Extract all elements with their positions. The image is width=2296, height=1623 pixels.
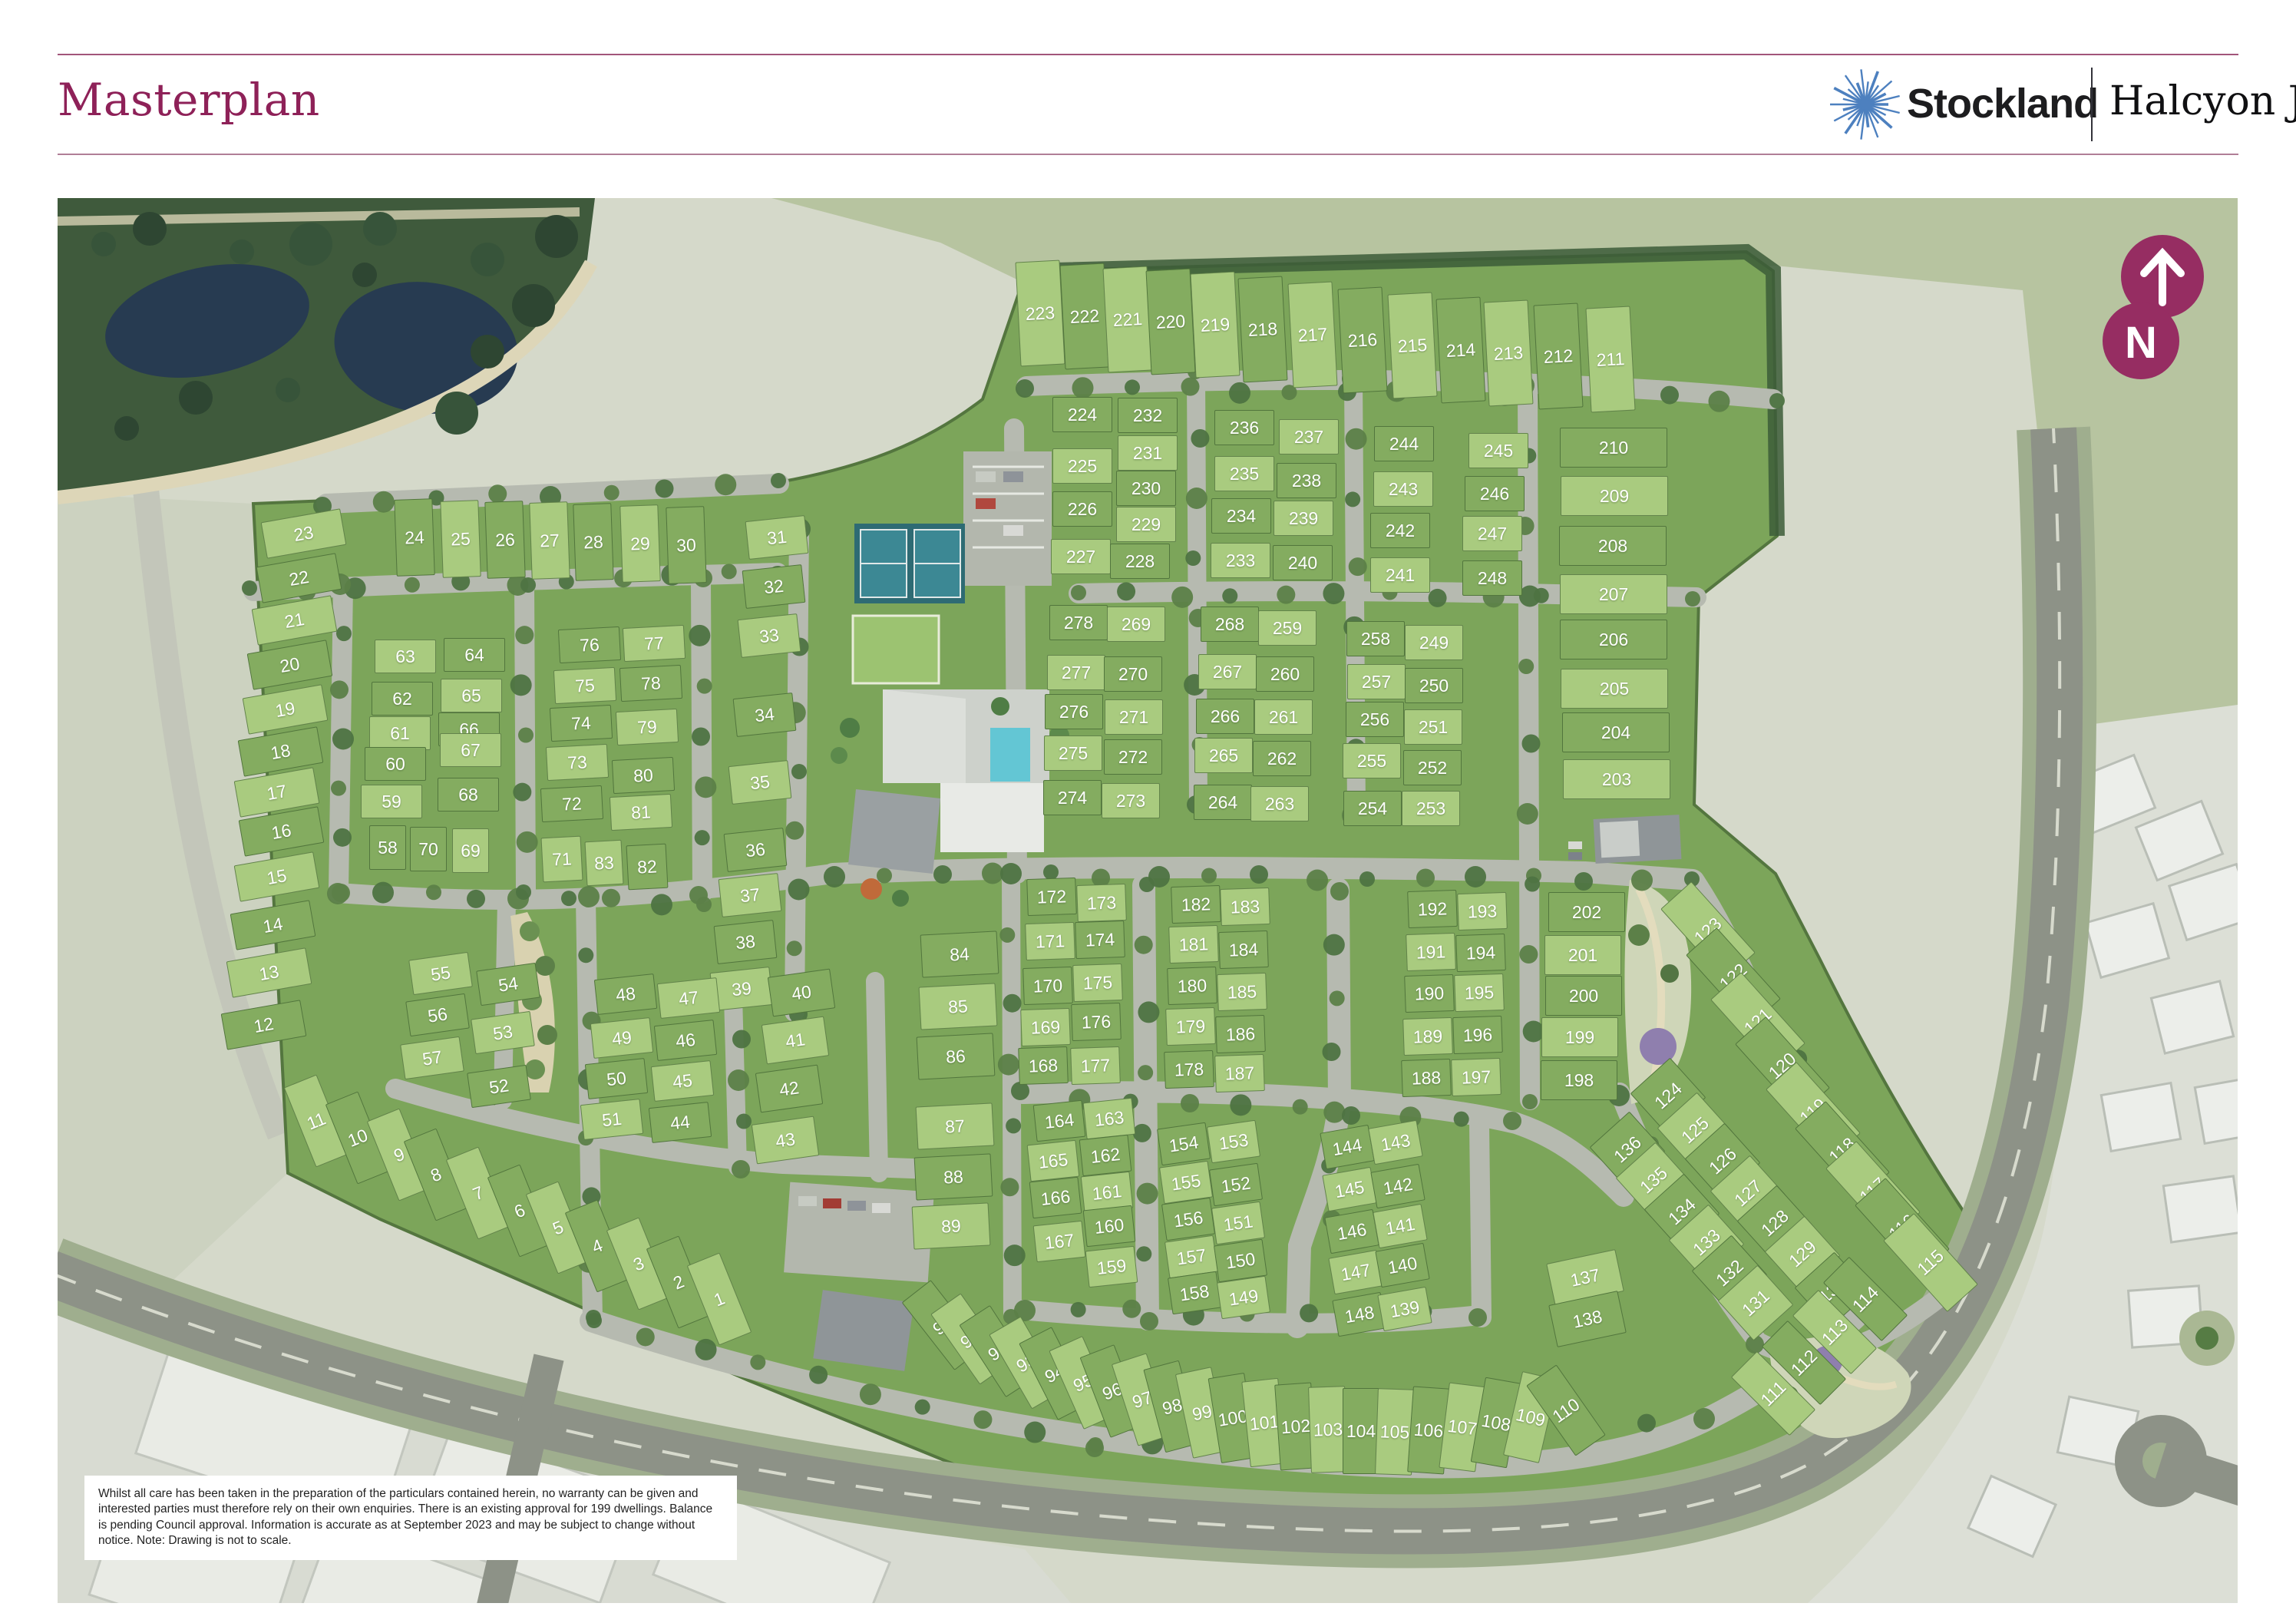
masterplan-map: 2232222212202192182172162152142132122112… <box>58 198 2238 1603</box>
lot-158: 158 <box>1168 1271 1221 1314</box>
lot-152: 152 <box>1209 1163 1263 1206</box>
lot-35: 35 <box>728 760 792 805</box>
lot-252: 252 <box>1403 750 1462 785</box>
lot-224: 224 <box>1052 397 1112 432</box>
lot-29: 29 <box>619 504 660 583</box>
lot-274: 274 <box>1043 780 1102 815</box>
lot-253: 253 <box>1402 791 1460 826</box>
lot-175: 175 <box>1072 964 1123 1002</box>
lot-190: 190 <box>1404 974 1455 1013</box>
lot-273: 273 <box>1102 783 1160 818</box>
lot-26: 26 <box>484 501 525 579</box>
lot-163: 163 <box>1083 1098 1136 1139</box>
lot-141: 141 <box>1373 1204 1427 1248</box>
lot-85: 85 <box>919 983 998 1030</box>
lot-166: 166 <box>1029 1177 1082 1218</box>
lot-159: 159 <box>1085 1246 1138 1287</box>
lot-38: 38 <box>714 920 778 964</box>
lot-27: 27 <box>529 501 570 580</box>
lot-72: 72 <box>540 785 603 822</box>
lot-240: 240 <box>1273 545 1333 580</box>
lot-234: 234 <box>1211 498 1271 534</box>
header-rule-top <box>58 54 2238 55</box>
lot-258: 258 <box>1346 621 1405 656</box>
lot-241: 241 <box>1370 557 1430 593</box>
lot-187: 187 <box>1214 1054 1265 1092</box>
lot-233: 233 <box>1211 543 1270 578</box>
lot-71: 71 <box>541 836 583 883</box>
lot-140: 140 <box>1375 1243 1429 1287</box>
lot-52: 52 <box>467 1065 531 1108</box>
lot-185: 185 <box>1217 973 1267 1011</box>
lot-198: 198 <box>1541 1060 1617 1100</box>
lot-212: 212 <box>1533 303 1583 410</box>
lot-188: 188 <box>1401 1059 1452 1097</box>
lot-239: 239 <box>1274 501 1333 536</box>
lot-64: 64 <box>444 638 505 672</box>
lot-69: 69 <box>452 828 489 873</box>
lot-84: 84 <box>920 930 999 977</box>
lot-223: 223 <box>1015 260 1065 367</box>
lot-49: 49 <box>590 1017 653 1059</box>
starburst-icon <box>1827 66 1904 143</box>
lot-147: 147 <box>1328 1250 1383 1294</box>
lot-65: 65 <box>441 679 502 712</box>
lot-67: 67 <box>440 733 501 767</box>
lot-199: 199 <box>1541 1017 1618 1057</box>
lot-82: 82 <box>626 844 669 891</box>
lot-189: 189 <box>1402 1017 1453 1056</box>
lot-83: 83 <box>585 840 624 886</box>
lot-74: 74 <box>550 705 613 742</box>
lot-207: 207 <box>1560 574 1667 614</box>
lot-20: 20 <box>246 640 332 690</box>
lot-249: 249 <box>1405 625 1463 660</box>
lot-63: 63 <box>375 640 436 673</box>
lot-251: 251 <box>1404 709 1462 745</box>
lot-215: 215 <box>1387 293 1437 399</box>
lot-33: 33 <box>738 613 801 658</box>
lot-48: 48 <box>594 973 657 1015</box>
lot-267: 267 <box>1198 654 1257 689</box>
lot-174: 174 <box>1075 921 1125 959</box>
lot-61: 61 <box>369 716 431 750</box>
lot-265: 265 <box>1194 738 1253 773</box>
lot-24: 24 <box>394 498 434 577</box>
lot-76: 76 <box>558 626 621 663</box>
project-name: Halcyon Jardin <box>2109 78 2296 124</box>
lot-171: 171 <box>1025 922 1075 960</box>
lot-47: 47 <box>657 977 720 1019</box>
lot-162: 162 <box>1079 1135 1132 1176</box>
lot-192: 192 <box>1407 890 1458 928</box>
lot-229: 229 <box>1116 507 1176 542</box>
lot-167: 167 <box>1033 1221 1086 1262</box>
lot-168: 168 <box>1018 1046 1069 1085</box>
lot-219: 219 <box>1190 272 1240 378</box>
lot-193: 193 <box>1457 892 1508 930</box>
lot-197: 197 <box>1451 1058 1501 1096</box>
lot-264: 264 <box>1194 785 1252 820</box>
lot-257: 257 <box>1347 664 1406 699</box>
lot-34: 34 <box>733 693 797 737</box>
lot-204: 204 <box>1562 712 1670 752</box>
lot-59: 59 <box>361 785 422 818</box>
brand-group: Stockland Halcyon Jardin <box>1827 64 2238 149</box>
lot-165: 165 <box>1027 1140 1080 1182</box>
page-title: Masterplan <box>58 74 320 126</box>
lot-235: 235 <box>1214 456 1274 491</box>
lot-164: 164 <box>1033 1100 1086 1142</box>
lot-173: 173 <box>1076 884 1127 922</box>
lot-246: 246 <box>1465 476 1525 511</box>
lot-145: 145 <box>1322 1167 1376 1211</box>
lot-179: 179 <box>1165 1007 1216 1046</box>
lot-41: 41 <box>761 1016 829 1065</box>
lot-45: 45 <box>651 1060 714 1102</box>
lot-202: 202 <box>1548 892 1625 932</box>
lot-243: 243 <box>1373 471 1433 507</box>
lot-262: 262 <box>1253 741 1311 776</box>
lot-275: 275 <box>1044 735 1102 771</box>
lot-43: 43 <box>752 1116 819 1165</box>
lot-73: 73 <box>546 744 609 781</box>
lot-259: 259 <box>1258 610 1316 646</box>
lot-57: 57 <box>400 1036 464 1079</box>
page: Masterplan Stockland Halcyon Jardin <box>0 0 2296 1623</box>
lot-153: 153 <box>1207 1120 1260 1163</box>
lot-276: 276 <box>1045 694 1103 729</box>
lot-220: 220 <box>1145 269 1195 375</box>
lot-30: 30 <box>666 506 706 584</box>
lot-80: 80 <box>612 757 675 794</box>
lot-13: 13 <box>226 947 312 998</box>
lot-183: 183 <box>1220 888 1270 926</box>
lot-214: 214 <box>1435 297 1485 404</box>
lot-172: 172 <box>1026 878 1077 916</box>
lot-12: 12 <box>220 1000 306 1050</box>
lot-236: 236 <box>1214 410 1274 445</box>
lot-247: 247 <box>1462 516 1522 551</box>
lot-260: 260 <box>1256 656 1314 692</box>
lot-222: 222 <box>1059 263 1109 370</box>
lots-layer: 2232222212202192182172162152142132122112… <box>58 198 2238 1603</box>
lot-182: 182 <box>1171 885 1221 924</box>
lot-40: 40 <box>768 969 835 1017</box>
lot-245: 245 <box>1468 433 1528 468</box>
lot-58: 58 <box>369 825 406 870</box>
lot-14: 14 <box>230 900 315 950</box>
lot-213: 213 <box>1483 300 1533 407</box>
lot-25: 25 <box>440 500 481 578</box>
lot-277: 277 <box>1047 655 1105 690</box>
lot-177: 177 <box>1070 1046 1121 1085</box>
lot-146: 146 <box>1324 1209 1379 1254</box>
lot-203: 203 <box>1563 759 1670 799</box>
lot-62: 62 <box>372 682 433 716</box>
lot-194: 194 <box>1455 934 1506 972</box>
lot-160: 160 <box>1083 1205 1136 1247</box>
lot-87: 87 <box>916 1102 995 1149</box>
lot-37: 37 <box>719 873 782 917</box>
lot-46: 46 <box>654 1020 717 1061</box>
lot-221: 221 <box>1102 266 1152 373</box>
lot-196: 196 <box>1452 1016 1503 1054</box>
lot-31: 31 <box>745 515 809 560</box>
lot-269: 269 <box>1107 607 1165 642</box>
lot-209: 209 <box>1561 476 1668 516</box>
lot-263: 263 <box>1250 786 1309 821</box>
lot-200: 200 <box>1545 976 1622 1016</box>
lot-208: 208 <box>1559 526 1667 566</box>
lot-170: 170 <box>1022 967 1073 1005</box>
lot-184: 184 <box>1218 930 1269 969</box>
lot-79: 79 <box>616 709 679 745</box>
lot-50: 50 <box>585 1058 648 1099</box>
lot-104: 104 <box>1343 1388 1379 1474</box>
lot-36: 36 <box>724 828 788 872</box>
lot-266: 266 <box>1196 699 1254 734</box>
lot-51: 51 <box>580 1099 643 1140</box>
lot-205: 205 <box>1561 669 1668 709</box>
lot-143: 143 <box>1368 1120 1422 1165</box>
lot-139: 139 <box>1377 1287 1432 1331</box>
lot-206: 206 <box>1560 620 1667 659</box>
lot-237: 237 <box>1279 419 1339 455</box>
lot-77: 77 <box>623 625 685 662</box>
lot-28: 28 <box>573 503 613 581</box>
lot-144: 144 <box>1320 1125 1374 1169</box>
lot-154: 154 <box>1157 1122 1211 1165</box>
lot-15: 15 <box>233 851 319 902</box>
lot-228: 228 <box>1110 544 1170 579</box>
lot-44: 44 <box>649 1102 712 1143</box>
lot-248: 248 <box>1462 560 1522 596</box>
lot-232: 232 <box>1118 398 1178 433</box>
lot-242: 242 <box>1370 513 1430 548</box>
lot-178: 178 <box>1164 1050 1214 1089</box>
lot-156: 156 <box>1161 1198 1215 1241</box>
lot-226: 226 <box>1052 491 1112 527</box>
lot-227: 227 <box>1051 539 1111 574</box>
header-rule-bottom <box>58 154 2238 155</box>
lot-261: 261 <box>1254 699 1313 735</box>
lot-231: 231 <box>1118 435 1178 471</box>
lot-186: 186 <box>1215 1015 1266 1053</box>
lot-78: 78 <box>619 665 682 702</box>
lot-191: 191 <box>1406 933 1456 971</box>
lot-70: 70 <box>410 827 447 871</box>
lot-256: 256 <box>1346 702 1404 737</box>
lot-88: 88 <box>914 1153 993 1200</box>
lot-217: 217 <box>1287 282 1337 388</box>
north-label: N <box>2125 318 2157 368</box>
lot-250: 250 <box>1405 668 1463 703</box>
lot-181: 181 <box>1168 925 1219 964</box>
brand-divider <box>2091 68 2093 141</box>
lot-195: 195 <box>1454 973 1505 1012</box>
lot-230: 230 <box>1116 471 1176 506</box>
lot-244: 244 <box>1374 426 1434 461</box>
lot-149: 149 <box>1217 1276 1270 1319</box>
lot-60: 60 <box>365 747 426 781</box>
lot-176: 176 <box>1071 1003 1122 1041</box>
lot-268: 268 <box>1201 607 1259 642</box>
lot-270: 270 <box>1104 656 1162 692</box>
stockland-wordmark: Stockland <box>1907 80 2098 127</box>
lot-201: 201 <box>1544 935 1621 975</box>
lot-56: 56 <box>405 993 470 1036</box>
lot-271: 271 <box>1105 699 1163 735</box>
lot-86: 86 <box>917 1033 996 1079</box>
lot-254: 254 <box>1343 791 1402 826</box>
lot-89: 89 <box>912 1202 991 1249</box>
lot-54: 54 <box>476 963 540 1006</box>
north-arrow-badge: N <box>2099 229 2215 390</box>
lot-218: 218 <box>1237 276 1287 383</box>
lot-255: 255 <box>1343 743 1401 778</box>
lot-278: 278 <box>1049 605 1108 640</box>
lot-225: 225 <box>1052 448 1112 484</box>
lot-272: 272 <box>1104 739 1162 775</box>
lot-68: 68 <box>438 778 499 811</box>
lot-142: 142 <box>1370 1164 1425 1208</box>
lot-53: 53 <box>471 1011 535 1054</box>
lot-23: 23 <box>260 508 346 559</box>
lot-238: 238 <box>1277 463 1336 498</box>
lot-180: 180 <box>1167 967 1217 1005</box>
lot-169: 169 <box>1020 1008 1071 1046</box>
lot-211: 211 <box>1585 306 1635 413</box>
lot-151: 151 <box>1211 1202 1265 1245</box>
lot-81: 81 <box>610 794 672 831</box>
lot-32: 32 <box>742 564 806 609</box>
lot-216: 216 <box>1337 287 1387 394</box>
lot-75: 75 <box>553 667 616 704</box>
lot-210: 210 <box>1560 428 1667 468</box>
lot-42: 42 <box>755 1065 823 1113</box>
lot-55: 55 <box>408 952 473 995</box>
disclaimer-box: Whilst all care has been taken in the pr… <box>84 1476 737 1560</box>
